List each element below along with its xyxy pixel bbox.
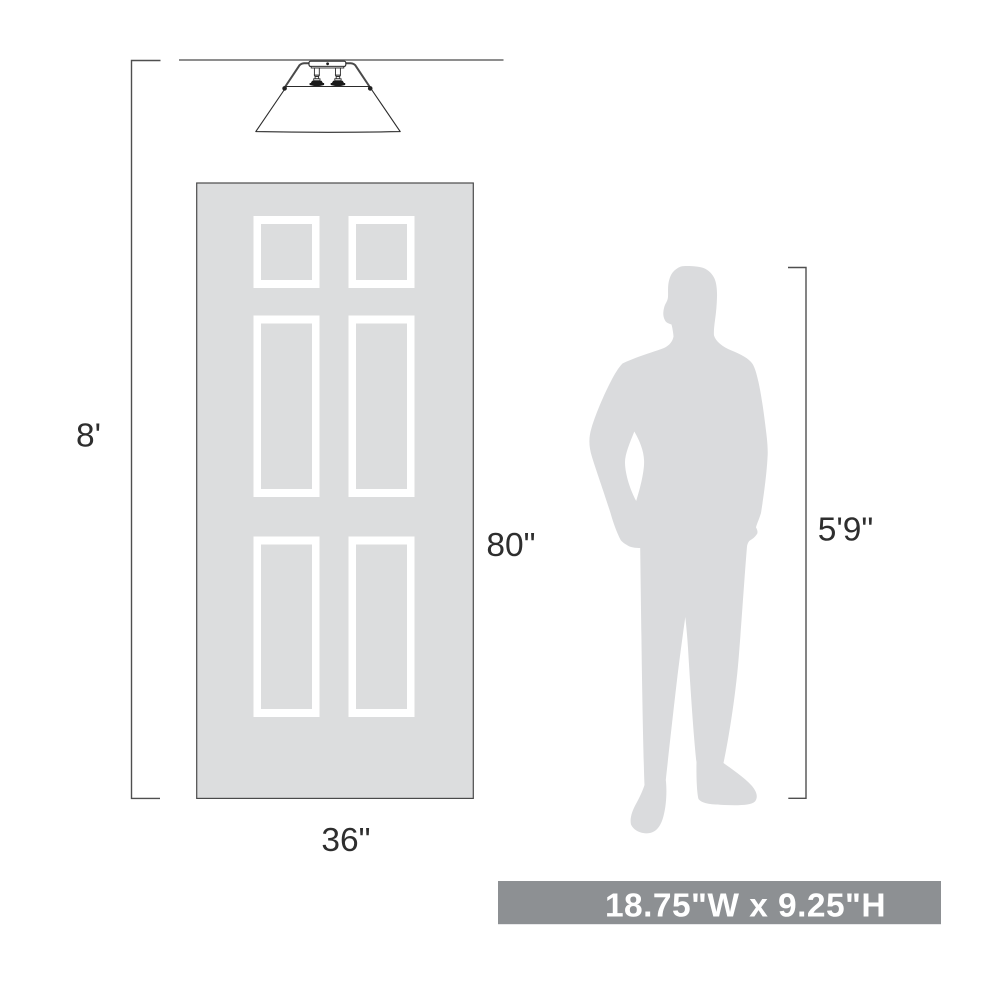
svg-text:80": 80" bbox=[486, 527, 535, 564]
svg-text:18.75"W x 9.25"H: 18.75"W x 9.25"H bbox=[605, 888, 886, 925]
svg-text:8': 8' bbox=[76, 418, 101, 455]
svg-text:36": 36" bbox=[321, 822, 370, 859]
svg-text:5'9": 5'9" bbox=[818, 512, 874, 549]
